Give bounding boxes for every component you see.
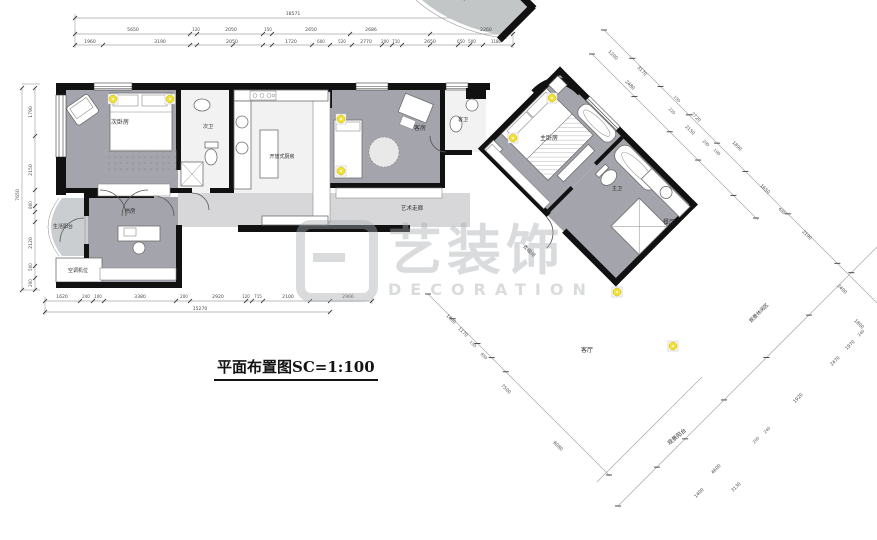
bed (106, 93, 176, 174)
dim-label: 150 (673, 94, 682, 103)
dim-label: 220 (668, 106, 677, 115)
dim-label: 120 (192, 27, 200, 32)
room-label: 生活阳台 (53, 223, 73, 230)
dim-label: 1960 (84, 39, 96, 45)
downlight-icon (336, 114, 346, 124)
dim-label: 1800 (852, 318, 865, 331)
dim-label: 715 (254, 294, 262, 299)
dim-label: 1920 (792, 392, 805, 405)
dim-label: 200 (702, 138, 711, 147)
dim-label: 2120 (28, 237, 34, 249)
dim-label: 6080 (551, 440, 564, 453)
downlight-icon (547, 93, 557, 103)
dim-label: 500 (468, 39, 476, 44)
master-suite (462, 67, 697, 302)
dim-label: 2470 (829, 355, 842, 368)
room-label: 客房 (414, 124, 426, 132)
dim-label: 520 (338, 39, 346, 44)
window (56, 95, 66, 157)
dim-label: 2966 (342, 294, 354, 300)
dim-label: 120 (242, 294, 250, 299)
downlight-icon (508, 133, 518, 143)
dim-label: 1650 (758, 183, 771, 196)
room-label: 次卧房 (111, 118, 129, 126)
dim-label: 2920 (212, 294, 224, 300)
dim-label: 2686 (365, 27, 377, 33)
dim-label: 1200 (606, 49, 619, 62)
dim-label: 15270 (193, 306, 208, 312)
room-label: 观景阳台 (666, 426, 688, 447)
dim-label: 800 (28, 201, 33, 209)
dim-label: 650 (457, 39, 465, 44)
sink-icon (236, 116, 248, 128)
dim-label: 2050 (226, 39, 238, 45)
dim-label: 500 (28, 263, 33, 271)
dim-label: 150 (264, 27, 272, 32)
dim-label: 200 (381, 39, 389, 44)
dim-label: 200 (28, 279, 33, 287)
downlight-icon (612, 287, 622, 297)
dim-label: 3380 (134, 294, 146, 300)
dim-label: 100 (94, 294, 102, 299)
dim-label: 2260 (480, 27, 492, 33)
dim-label: 2050 (225, 27, 237, 33)
dim-label: 2650 (305, 27, 317, 33)
rug (106, 150, 176, 174)
drawing-title-block: 平面布置图SC=1:100 (214, 356, 378, 377)
room-label: 空调机位 (68, 267, 88, 274)
dim-label: 1790 (28, 106, 34, 118)
round-rug (369, 137, 399, 167)
downlight-icon (108, 94, 118, 104)
dim-label: 1890 (730, 140, 743, 153)
dim-label: 2150 (683, 124, 696, 137)
room-label: 艺术走廊 (401, 204, 424, 212)
shaft (466, 88, 486, 99)
dim-label: 4600 (710, 463, 723, 476)
horizontal-wing (48, 83, 490, 288)
room-label: 主卧房 (540, 134, 558, 142)
downlight-icon (668, 341, 678, 351)
dim-label: 1170 (456, 326, 469, 339)
room-label: 书房 (124, 207, 136, 215)
dim-label: 5650 (127, 27, 139, 33)
dim-label: 850 (480, 351, 489, 360)
downlight-icon (165, 94, 175, 104)
floorplan-canvas: 次卧房次卫开放式厨房客房客卫主卧房主卫衣帽间餐厅客厅艺术走廊书房生活阳台空调机位… (0, 0, 877, 540)
dim-label: 2100 (282, 294, 294, 300)
dim-label: 1180 (491, 39, 502, 44)
dim-label: 600 (317, 39, 325, 44)
dim-label: 200 (180, 294, 188, 299)
floorplan-sheet: 次卧房次卫开放式厨房客房客卫主卧房主卫衣帽间餐厅客厅艺术走廊书房生活阳台空调机位… (0, 0, 877, 540)
sink-icon (236, 142, 248, 154)
dim-label: 240 (82, 294, 90, 299)
dim-label: 1400 (444, 313, 457, 326)
dim-label: 2650 (424, 39, 436, 45)
console-table (262, 216, 328, 225)
dim-label: 600 (778, 206, 787, 215)
dim-label: 1720 (285, 39, 297, 45)
dim-label: 1400 (693, 487, 706, 500)
dim-label: 18571 (286, 11, 301, 17)
dim-label: 7650 (15, 189, 21, 201)
dim-label: 3190 (154, 39, 166, 45)
room-label: 客厅 (581, 346, 593, 354)
dim-label: 7500 (499, 383, 512, 396)
room-label: 开放式厨房 (269, 153, 294, 160)
room-label: 观景休闲区 (748, 302, 771, 325)
room-label: 衣帽间 (521, 243, 537, 259)
room-label: 次卫 (203, 123, 213, 130)
room-label: 主卫 (612, 185, 622, 192)
dim-label: 3130 (730, 481, 743, 494)
dim-label: 240 (762, 425, 771, 434)
dim-label: 3170 (635, 65, 648, 78)
dim-label: 2190 (800, 229, 813, 242)
dim-label: 100 (713, 147, 722, 156)
downlight-icon (336, 166, 346, 176)
dim-label: 710 (392, 39, 400, 44)
dim-label: 1620 (56, 294, 68, 300)
dim-label: 2770 (360, 39, 372, 45)
drawing-title: 平面布置图SC=1:100 (214, 358, 378, 381)
room-label: 客卫 (458, 116, 468, 123)
dim-label: 240 (856, 328, 865, 337)
dim-label: 2480 (623, 79, 636, 92)
room-label: 餐厅 (663, 218, 675, 226)
dim-label: 200 (751, 435, 760, 444)
dim-label: 1970 (844, 339, 857, 352)
dim-label: 2150 (28, 164, 34, 176)
dim-label: 150 (469, 339, 478, 348)
dim-label: 2400 (835, 283, 848, 296)
